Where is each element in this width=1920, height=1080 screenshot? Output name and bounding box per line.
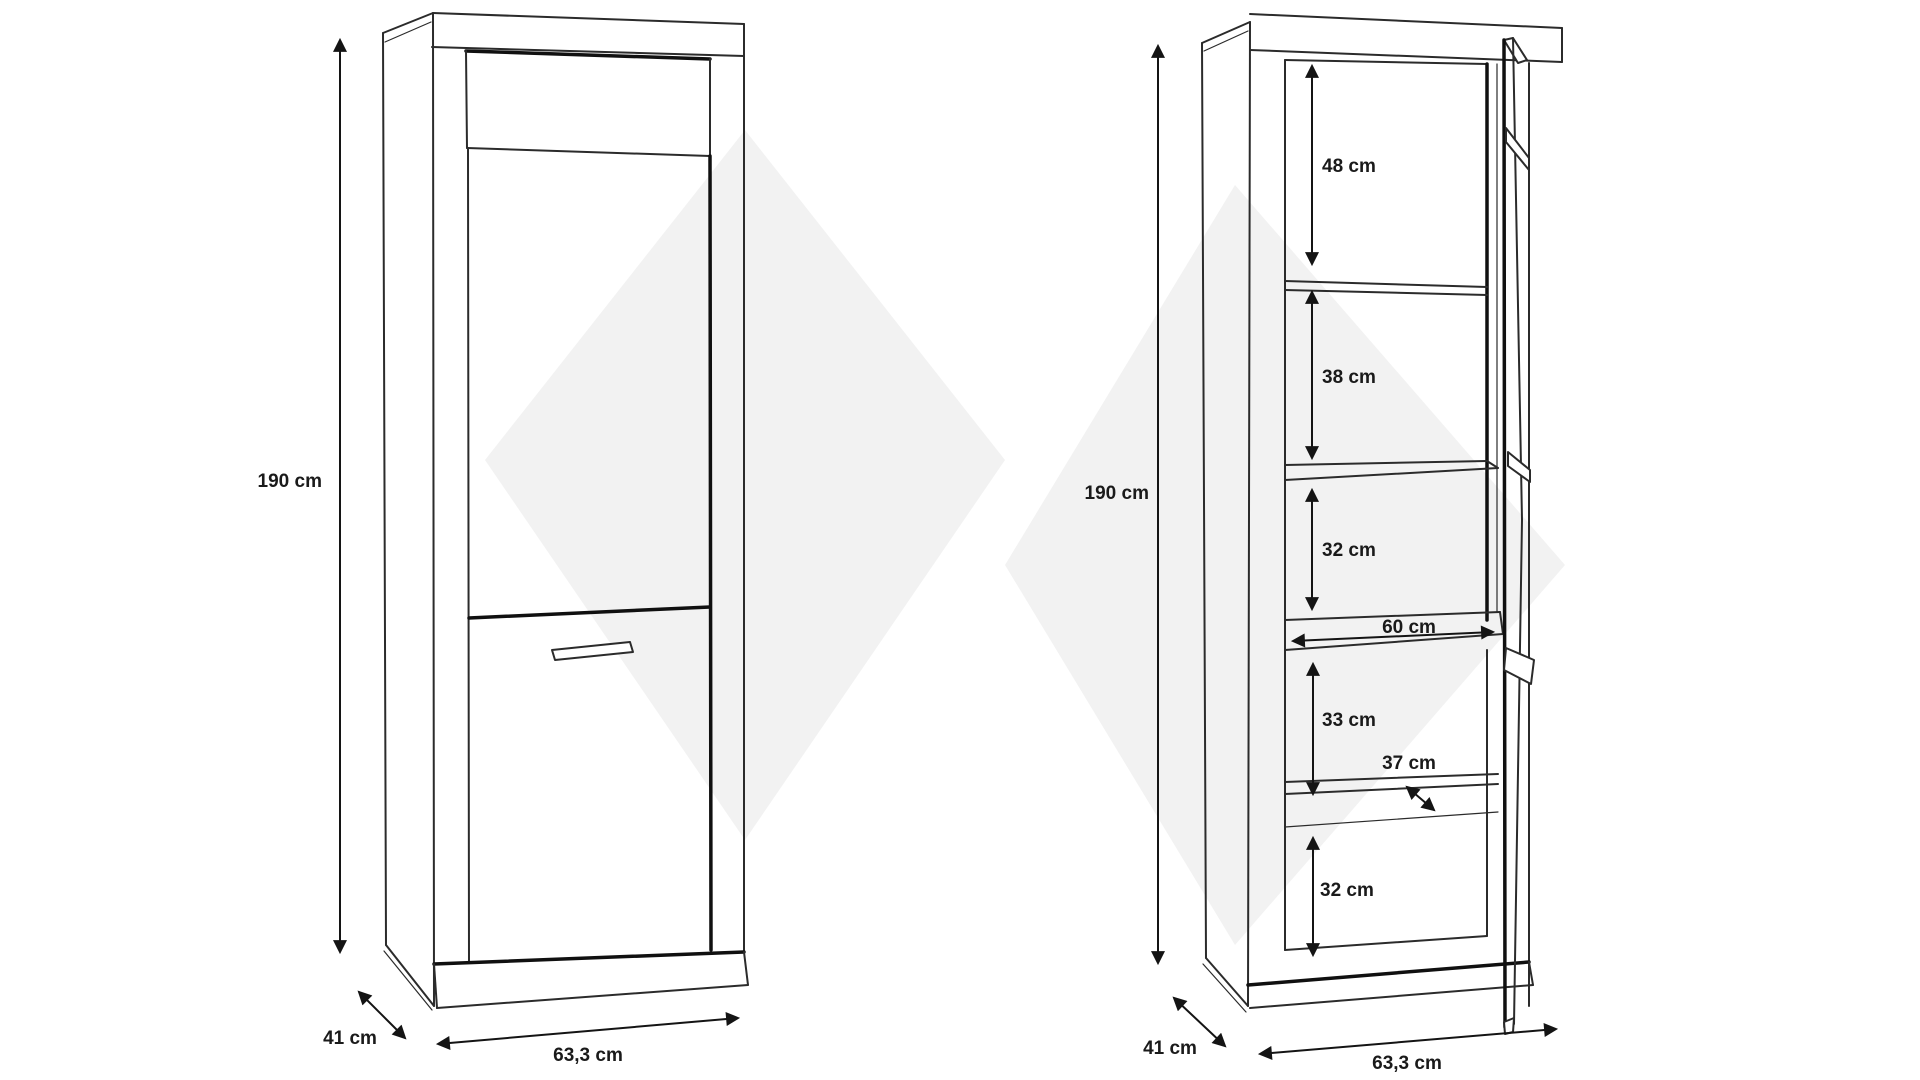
front-height-label: 190 cm — [258, 471, 322, 492]
fascia-left-edge — [466, 51, 467, 148]
front-width-label: 63,3 cm — [553, 1045, 623, 1066]
side-panel-top-edge — [1202, 22, 1250, 43]
open-width-dimension: 63,3 cm — [1260, 1029, 1556, 1074]
compartment-1-label: 48 cm — [1322, 156, 1376, 177]
fascia-bottom-edge — [467, 148, 710, 156]
side-panel-top-edge-inner — [1204, 31, 1248, 51]
side-panel-top-edge — [383, 13, 433, 33]
base-bottom-edge — [437, 985, 748, 1008]
compartment-5-dimension: 32 cm — [1313, 838, 1374, 955]
side-panel-top-edge-inner — [385, 22, 431, 42]
side-panel-bottom-edge — [386, 945, 434, 1006]
compartment-2-label: 38 cm — [1322, 367, 1376, 388]
base-right-edge — [744, 952, 748, 985]
compartment-3-label: 32 cm — [1322, 540, 1376, 561]
shelf-depth-arrow — [1407, 787, 1434, 810]
front-width-dimension: 63,3 cm — [438, 1018, 738, 1066]
base-top-edge — [434, 952, 744, 964]
compartment-4-label: 33 cm — [1322, 710, 1376, 731]
front-left-corner — [433, 13, 434, 1006]
shelf-depth-dimension: 37 cm — [1382, 753, 1436, 810]
front-depth-label: 41 cm — [323, 1028, 377, 1049]
door-right-edge — [710, 156, 711, 950]
diagram-canvas: 190 cm 41 cm 63,3 cm — [0, 0, 1920, 1080]
compartment-1-dimension: 48 cm — [1312, 66, 1376, 264]
open-height-label: 190 cm — [1085, 483, 1149, 504]
interior-floor — [1285, 936, 1487, 950]
top-cap-upper-edge — [1250, 14, 1562, 28]
open-door-bottom-tip — [1504, 1018, 1514, 1034]
top-cap-upper-edge — [433, 13, 744, 24]
open-width-arrow — [1260, 1029, 1556, 1054]
cabinet-dimension-drawing: 190 cm 41 cm 63,3 cm — [0, 0, 1920, 1080]
side-panel-back-edge — [383, 33, 386, 945]
compartment-5-label: 32 cm — [1320, 880, 1374, 901]
open-depth-label: 41 cm — [1143, 1038, 1197, 1059]
door-left-edge — [468, 148, 469, 963]
base-top-edge — [1248, 962, 1529, 985]
door-hinge-top — [1506, 128, 1529, 170]
front-width-arrow — [438, 1018, 738, 1044]
front-height-dimension: 190 cm — [258, 40, 340, 952]
open-depth-dimension: 41 cm — [1143, 998, 1225, 1059]
shelf-width-label: 60 cm — [1382, 617, 1436, 638]
open-door-near-edge — [1504, 40, 1505, 1027]
side-panel-bottom-edge-outer — [1203, 964, 1246, 1012]
open-width-label: 63,3 cm — [1372, 1053, 1442, 1074]
base-bottom-edge — [1250, 985, 1533, 1008]
front-depth-dimension: 41 cm — [323, 992, 405, 1049]
door-hinge-middle — [1508, 452, 1530, 482]
shelf-depth-label: 37 cm — [1382, 753, 1436, 774]
side-panel-bottom-edge-outer — [384, 951, 432, 1010]
interior-ceiling — [1285, 60, 1487, 64]
watermark-diamonds — [485, 130, 1565, 945]
side-panel-bottom-edge — [1206, 958, 1248, 1006]
